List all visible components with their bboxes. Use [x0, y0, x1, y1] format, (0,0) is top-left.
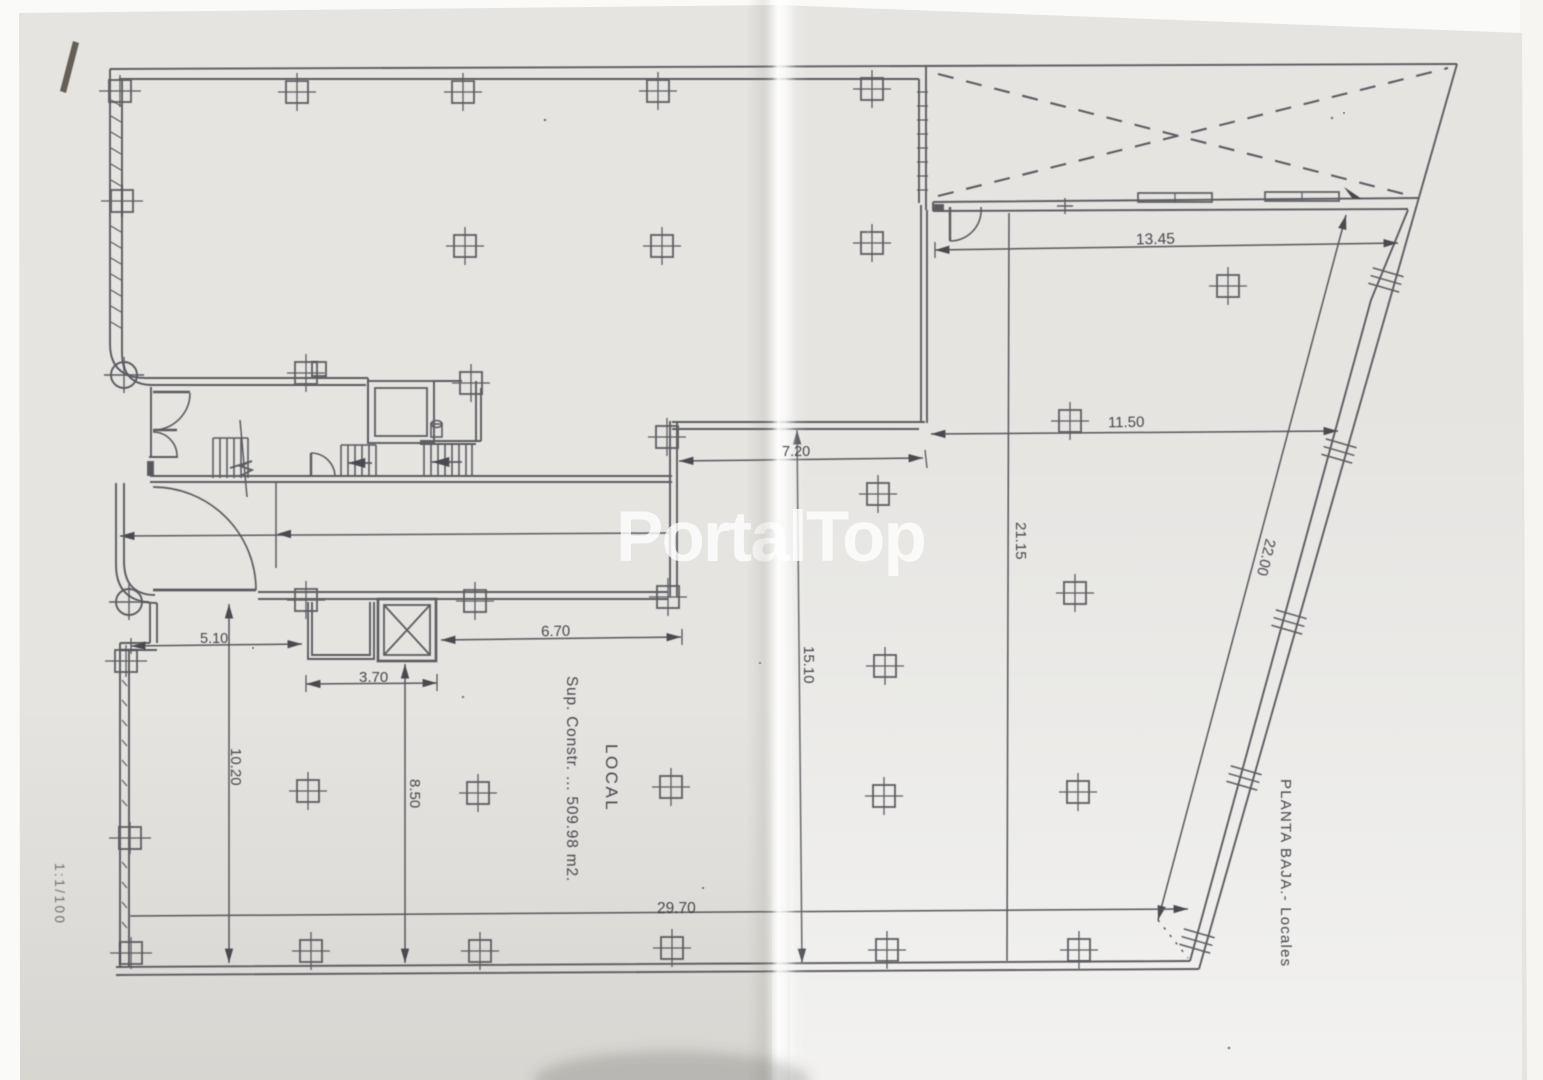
svg-text:8.50: 8.50 [406, 779, 423, 808]
svg-text:1:1/100: 1:1/100 [52, 863, 67, 926]
svg-text:29.70: 29.70 [657, 900, 696, 917]
svg-text:LOCAL: LOCAL [602, 744, 621, 812]
svg-text:10.20: 10.20 [227, 748, 244, 786]
svg-text:7.20: 7.20 [782, 444, 810, 460]
svg-text:13.45: 13.45 [1136, 231, 1175, 249]
svg-text:3.70: 3.70 [359, 669, 388, 686]
svg-text:6.70: 6.70 [541, 623, 571, 641]
svg-text:15.10: 15.10 [800, 646, 817, 684]
svg-text:PLANTA BAJA.- Locales: PLANTA BAJA.- Locales [1277, 779, 1294, 967]
svg-text:11.50: 11.50 [1108, 414, 1145, 432]
svg-text:21.15: 21.15 [1012, 522, 1029, 560]
svg-text:5.10: 5.10 [200, 631, 228, 647]
svg-text:Sup. Constr. ... 509.98 m2.: Sup. Constr. ... 509.98 m2. [563, 676, 580, 882]
